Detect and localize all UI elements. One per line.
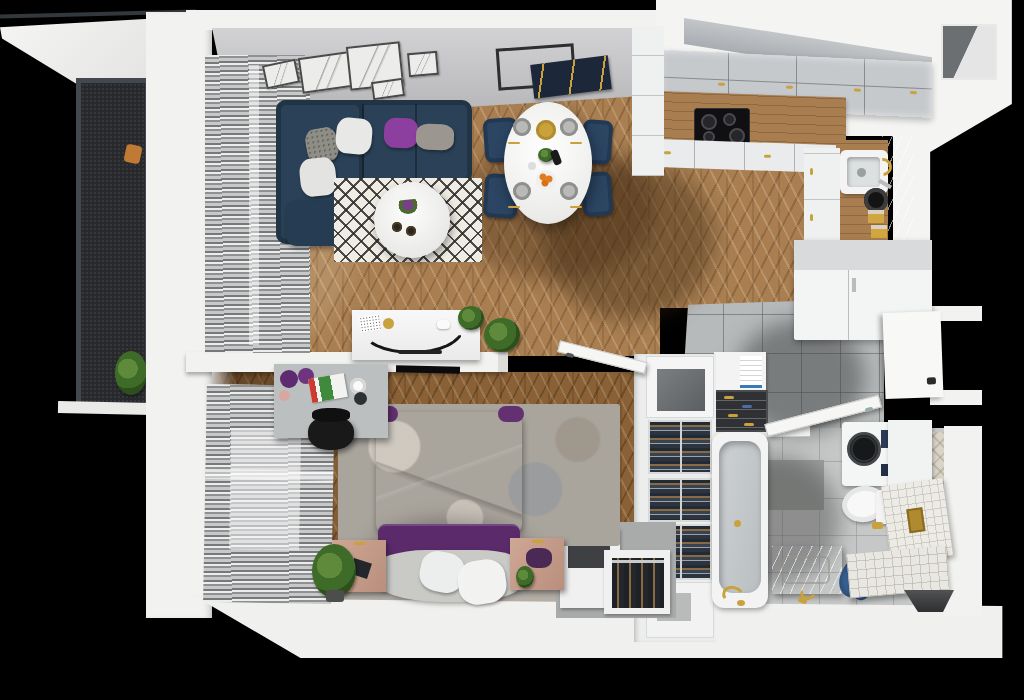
washing-machine — [842, 422, 890, 486]
shoe-rail — [612, 560, 664, 563]
base-cabinet-column — [804, 148, 840, 246]
east-bath-wall — [944, 426, 982, 616]
bathtub — [712, 432, 768, 608]
black-bottle — [550, 149, 563, 166]
linen-stack — [740, 356, 762, 388]
balcony-plant — [115, 351, 147, 395]
nightstand-right-handle — [532, 540, 544, 543]
washer-drum — [847, 432, 881, 466]
living-window-frame — [249, 65, 259, 345]
kitchen-tall-cabinet-left — [632, 26, 664, 176]
wall-frame-5 — [407, 51, 439, 78]
pillow-white-1 — [334, 116, 373, 155]
wardrobe-mirror-panel — [657, 369, 705, 411]
apartment-floorplan — [0, 0, 1024, 700]
nightstand-left-handle — [354, 542, 366, 545]
living-floor-plant — [484, 318, 520, 352]
purple-cushion — [526, 548, 552, 568]
top-wall — [186, 10, 694, 30]
cabinet-handle-3 — [854, 89, 861, 92]
gold-cutlery-2 — [570, 142, 582, 144]
gold-cutlery-1 — [508, 142, 520, 144]
tv-stand-base — [398, 350, 442, 354]
chair-backrest — [312, 408, 350, 422]
burner-1 — [701, 114, 717, 130]
gold-cutlery-3 — [508, 206, 520, 208]
balcony-sill — [58, 401, 152, 415]
office-chair — [308, 416, 354, 450]
pillow-purple — [383, 117, 419, 149]
hall-shoe-rack — [714, 390, 768, 432]
bathtub-interior — [719, 441, 761, 593]
bed-duvet — [376, 412, 522, 534]
gold-charger — [536, 120, 556, 140]
left-exterior-wall — [146, 12, 212, 618]
qr-card — [359, 315, 381, 333]
base-handle-1 — [664, 151, 671, 154]
shoe-slots — [612, 558, 664, 608]
cabinet-handle-4 — [910, 91, 917, 94]
nightstand-right — [510, 538, 564, 590]
hall-shelf — [714, 352, 766, 390]
shoe-gold-3 — [744, 423, 754, 426]
gold-floor-dot — [734, 520, 741, 527]
table-candle-1 — [392, 222, 402, 232]
pink-dish — [279, 390, 290, 401]
nightstand-plant — [516, 566, 534, 588]
burner-3 — [723, 113, 736, 126]
shoe-gold-2 — [728, 414, 738, 417]
pouf-purple-1 — [280, 370, 298, 388]
white-pod — [437, 320, 450, 329]
wall-niche-topright — [941, 24, 997, 80]
washer-detergent — [881, 464, 888, 476]
shoe-blue-1 — [742, 405, 752, 408]
gold-cutlery-4 — [570, 206, 582, 208]
pillow-gray — [416, 123, 455, 150]
bedroom-plant-pot — [326, 590, 344, 602]
pillow-white-2 — [298, 156, 338, 198]
place-setting-plate-1 — [513, 118, 531, 136]
vanity-basin-line — [782, 556, 830, 584]
sideboard-plant — [458, 306, 484, 330]
bedroom-curtain-panel — [229, 429, 301, 550]
gold-jar-2 — [871, 225, 887, 238]
fridge-top-face — [794, 240, 932, 270]
balcony-chair — [123, 144, 142, 165]
toilet-gold-flush — [872, 522, 883, 529]
entry-door-open — [883, 311, 944, 399]
coffee-table — [374, 182, 450, 258]
entry-door-handle — [927, 377, 936, 384]
fruit-bowl-oranges — [536, 170, 556, 190]
table-card — [393, 187, 416, 201]
base-handle-2 — [764, 155, 771, 158]
partition-wall-endcap — [498, 352, 508, 372]
cabinet-handle-1 — [718, 83, 725, 86]
column-handle-1 — [810, 168, 813, 175]
balcony — [76, 78, 150, 412]
black-pot — [864, 188, 888, 212]
gold-disc — [383, 318, 394, 329]
white-candle — [528, 162, 536, 170]
desk-lamp — [354, 392, 367, 405]
dining-table — [504, 102, 592, 224]
sink-drain — [857, 168, 866, 177]
fridge-handle — [852, 278, 856, 292]
washer-controls — [881, 430, 888, 448]
wardrobe-clothes-2 — [648, 478, 712, 522]
shoe-cabinet-right — [604, 550, 670, 614]
shoe-gold-1 — [724, 396, 734, 399]
tub-gold-drain — [737, 600, 745, 606]
bedroom-window-sill — [205, 469, 333, 481]
table-candle-2 — [406, 226, 416, 236]
wardrobe-clothes-1 — [648, 420, 712, 474]
column-handle-2 — [810, 214, 813, 221]
place-setting-plate-2 — [560, 118, 578, 136]
place-setting-plate-3 — [513, 182, 531, 200]
bedroom-door-handle — [565, 352, 574, 358]
gold-jar-1 — [868, 210, 884, 223]
magazines — [308, 373, 348, 403]
fridge-door-seam — [848, 270, 849, 340]
gold-access-plate — [906, 507, 925, 533]
place-setting-plate-4 — [560, 182, 578, 200]
cabinet-handle-2 — [786, 86, 793, 89]
wardrobe-top-unit — [646, 356, 714, 418]
bed-corner-fold-right — [498, 406, 524, 422]
